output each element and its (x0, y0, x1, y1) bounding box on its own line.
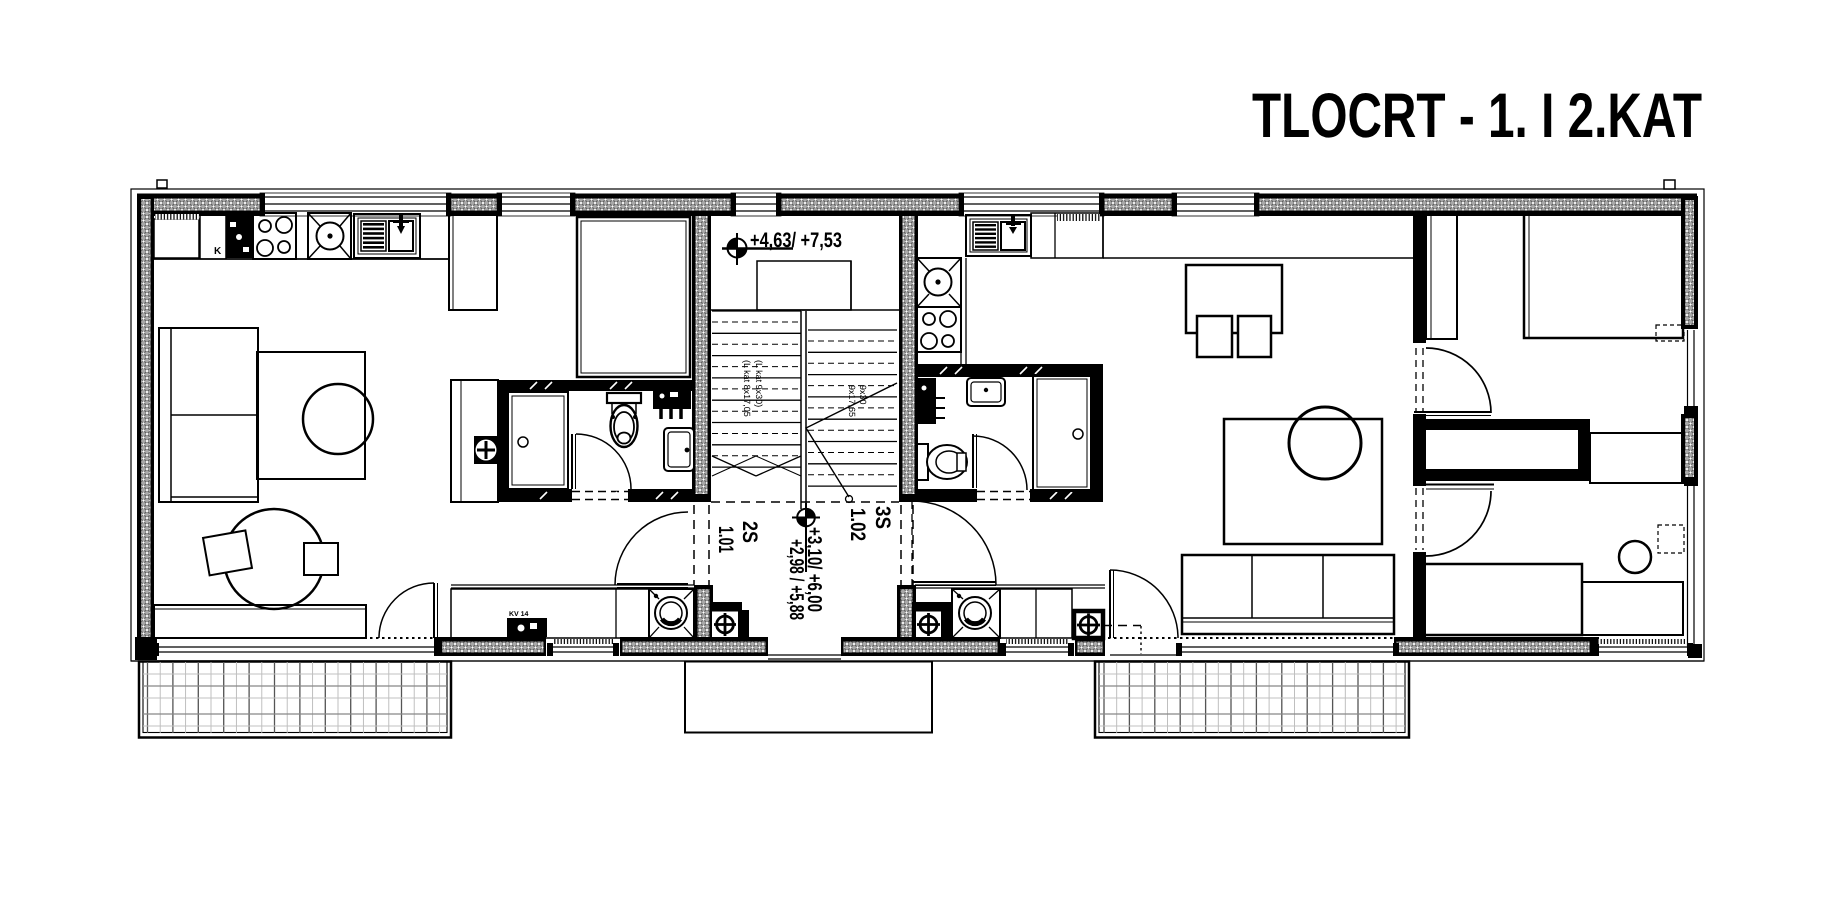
svg-text:(L kat 8x17,05: (L kat 8x17,05 (742, 360, 752, 417)
svg-text:KV 14: KV 14 (509, 611, 529, 618)
svg-text:1.02: 1.02 (846, 508, 869, 541)
svg-text:3S: 3S (871, 506, 894, 529)
svg-text:9x17,65: 9x17,65 (847, 385, 857, 417)
svg-text:+2,98 / +5,88: +2,98 / +5,88 (785, 539, 807, 620)
svg-text:(L kat 9x30): (L kat 9x30) (754, 360, 764, 407)
svg-text:K: K (214, 246, 222, 257)
svg-text:+4,63/ +7,53: +4,63/ +7,53 (750, 229, 842, 252)
svg-text:9x30: 9x30 (858, 385, 868, 405)
svg-text:2S: 2S (738, 521, 761, 543)
svg-text:TLOCRT - 1. I 2.KAT: TLOCRT - 1. I 2.KAT (1252, 81, 1702, 151)
svg-text:1.01: 1.01 (714, 526, 737, 553)
